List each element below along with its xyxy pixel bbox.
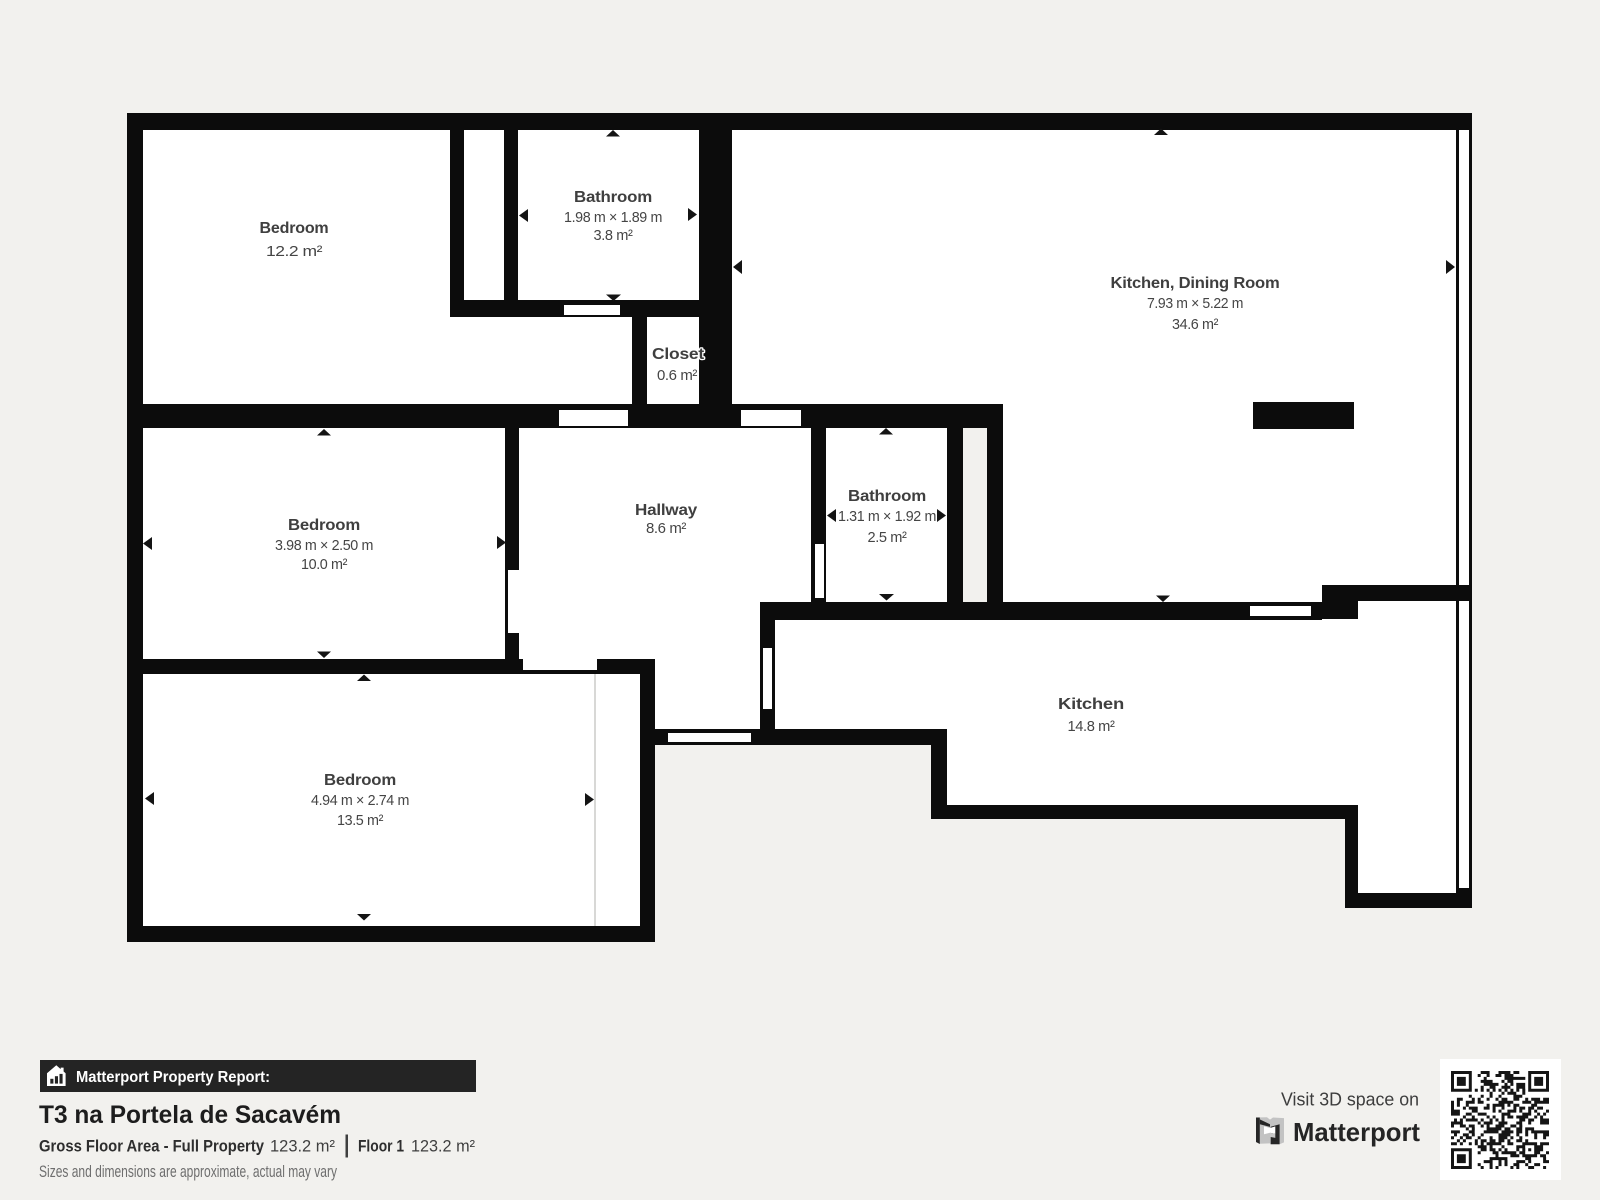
svg-text:Bathroom: Bathroom xyxy=(848,488,926,505)
svg-text:0.6 m²: 0.6 m² xyxy=(657,367,697,384)
svg-text:2.5 m²: 2.5 m² xyxy=(868,529,907,546)
svg-text:Visit 3D space on: Visit 3D space on xyxy=(1281,1090,1419,1110)
svg-text:Bedroom: Bedroom xyxy=(260,220,329,237)
svg-text:1.98 m × 1.89 m: 1.98 m × 1.89 m xyxy=(564,209,662,226)
svg-text:Sizes and dimensions are appro: Sizes and dimensions are approximate, ac… xyxy=(39,1163,338,1181)
svg-text:7.93 m × 5.22 m: 7.93 m × 5.22 m xyxy=(1147,295,1243,312)
svg-text:Matterport Property Report:: Matterport Property Report: xyxy=(76,1069,270,1086)
svg-text:1.31 m × 1.92 m: 1.31 m × 1.92 m xyxy=(838,508,936,525)
svg-text:Kitchen: Kitchen xyxy=(1058,696,1124,713)
svg-text:Floor 1: Floor 1 xyxy=(358,1137,404,1156)
svg-text:Bathroom: Bathroom xyxy=(574,189,652,206)
svg-text:4.94 m × 2.74 m: 4.94 m × 2.74 m xyxy=(311,792,409,809)
svg-text:Bedroom: Bedroom xyxy=(288,517,360,534)
svg-text:8.6 m²: 8.6 m² xyxy=(646,520,686,537)
svg-text:Hallway: Hallway xyxy=(635,502,697,519)
svg-text:3.8 m²: 3.8 m² xyxy=(594,227,633,244)
svg-text:123.2 m²: 123.2 m² xyxy=(270,1137,335,1156)
svg-text:10.0 m²: 10.0 m² xyxy=(301,556,347,573)
svg-text:123.2 m²: 123.2 m² xyxy=(411,1137,475,1156)
svg-text:34.6 m²: 34.6 m² xyxy=(1172,316,1218,333)
svg-text:14.8 m²: 14.8 m² xyxy=(1068,718,1115,735)
svg-text:3.98 m × 2.50 m: 3.98 m × 2.50 m xyxy=(275,537,373,554)
svg-text:Kitchen, Dining Room: Kitchen, Dining Room xyxy=(1111,275,1280,292)
svg-text:Gross Floor Area - Full Proper: Gross Floor Area - Full Property xyxy=(39,1137,264,1156)
svg-text:12.2 m²: 12.2 m² xyxy=(266,243,322,260)
svg-text:Closet: Closet xyxy=(652,346,705,363)
svg-text:Bedroom: Bedroom xyxy=(324,772,396,789)
svg-text:T3 na Portela de Sacavém: T3 na Portela de Sacavém xyxy=(39,1101,341,1129)
svg-text:13.5 m²: 13.5 m² xyxy=(337,812,383,829)
svg-text:Matterport: Matterport xyxy=(1293,1117,1420,1147)
